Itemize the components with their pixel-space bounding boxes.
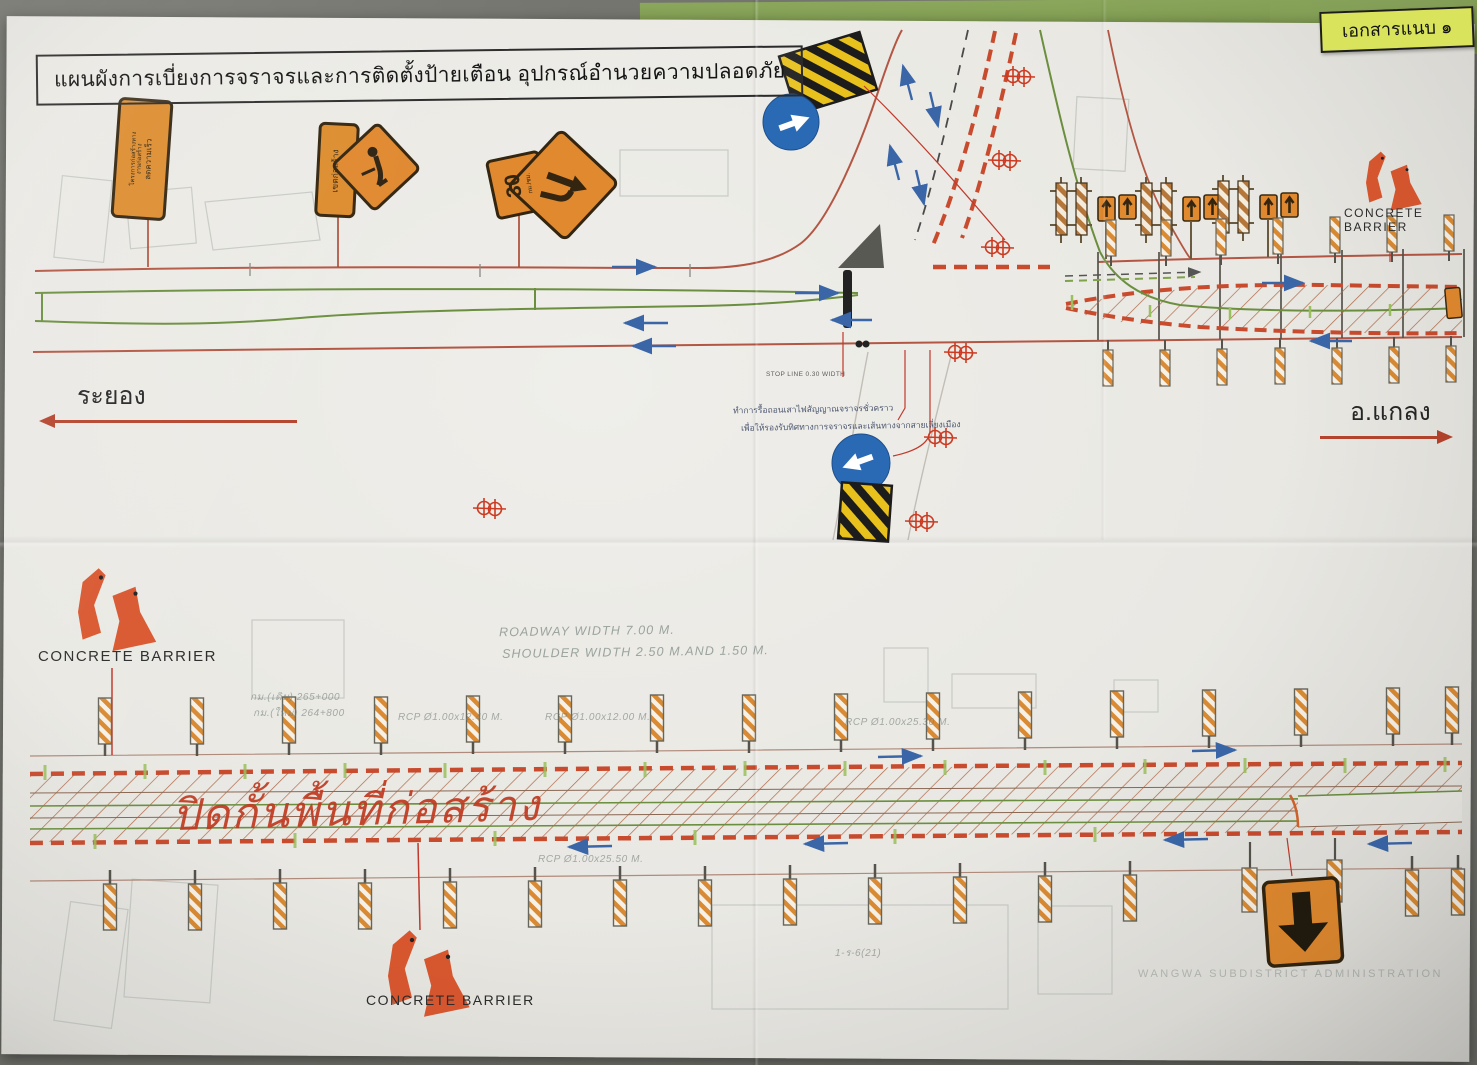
- direction-east: อ.แกลง: [1350, 392, 1475, 435]
- watermark-text: WANGWA SUBDISTRICT ADMINISTRATION: [1138, 968, 1443, 980]
- attachment-label: เอกสารแนบ ๑: [1319, 6, 1475, 53]
- blue-arrow-sign-1: [763, 94, 819, 150]
- rcp-note-4: RCP Ø1.00x25.50 M.: [538, 854, 643, 865]
- rcp-note-2: RCP Ø1.00x12.00 M.: [545, 712, 650, 723]
- rcp-note-3: RCP Ø1.00x25.30 M.: [845, 717, 950, 728]
- hazard-board-2: [838, 482, 892, 541]
- parcel-note: 1-ร-6(21): [835, 946, 881, 961]
- west-arrow-icon: [47, 420, 297, 423]
- faint-building-outlines: [54, 97, 1158, 1029]
- chainage-new: กม.(ใหม่) 264+800: [253, 706, 345, 721]
- speed-limit-text: 30 กม./ชม.: [487, 152, 549, 218]
- delineator-row-bottom-panel-south: [104, 855, 1465, 930]
- construction-zone-text: ปิดกั้นพื้นที่ก่อสร้าง: [171, 771, 542, 849]
- zone-sign-text: เขตก่อสร้าง: [322, 121, 350, 221]
- mini-orange-sign: [1445, 287, 1463, 318]
- speed-value: 30: [501, 172, 528, 199]
- direction-west-label: ระยอง: [77, 376, 327, 416]
- concrete-barrier-label-2: CONCRETE BARRIER: [38, 648, 217, 665]
- roadway-width-label: ROADWAY WIDTH 7.00 M.: [499, 623, 675, 639]
- top-road: [33, 30, 1464, 540]
- stop-line-label: STOP LINE 0.30 WIDTH: [766, 371, 845, 378]
- concrete-barrier-label-3: CONCRETE BARRIER: [366, 992, 535, 1008]
- traffic-plan-photo: แผนผังการเบี่ยงการจราจรและการติดตั้งป้าย…: [0, 0, 1477, 1065]
- concrete-barrier-icon-1: [1366, 152, 1422, 211]
- direction-west: ระยอง: [77, 376, 327, 419]
- project-sign-line3: ลดความเร็ว: [144, 138, 155, 180]
- east-arrow-icon: [1320, 436, 1445, 439]
- concrete-barrier-label-1: CONCRETE BARRIER: [1344, 206, 1477, 234]
- plan-drawing: [0, 0, 1477, 1065]
- page-title: แผนผังการเบี่ยงการจราจรและการติดตั้งป้าย…: [36, 45, 804, 105]
- rcp-note-1: RCP Ø1.00x12.40 M.: [398, 712, 503, 723]
- project-sign-text: โครงการก่อสร้างทาง งานก่อสร้าง ลดความเร็…: [117, 98, 167, 220]
- delineator-row-top-panel-south: [1103, 336, 1456, 386]
- note-line-1: ทำการรื้อถอนเสาไฟสัญญาณจราจรชั่วคราว: [733, 401, 894, 418]
- down-arrow-sign: [1242, 838, 1343, 966]
- direction-east-label: อ.แกลง: [1350, 392, 1475, 432]
- zone-sign-label: เขตก่อสร้าง: [331, 149, 342, 192]
- barricade-groups: [1050, 175, 1298, 259]
- concrete-barrier-icon-2: [78, 568, 156, 651]
- chainage-old: กม.(เดิม) 265+000: [250, 690, 340, 705]
